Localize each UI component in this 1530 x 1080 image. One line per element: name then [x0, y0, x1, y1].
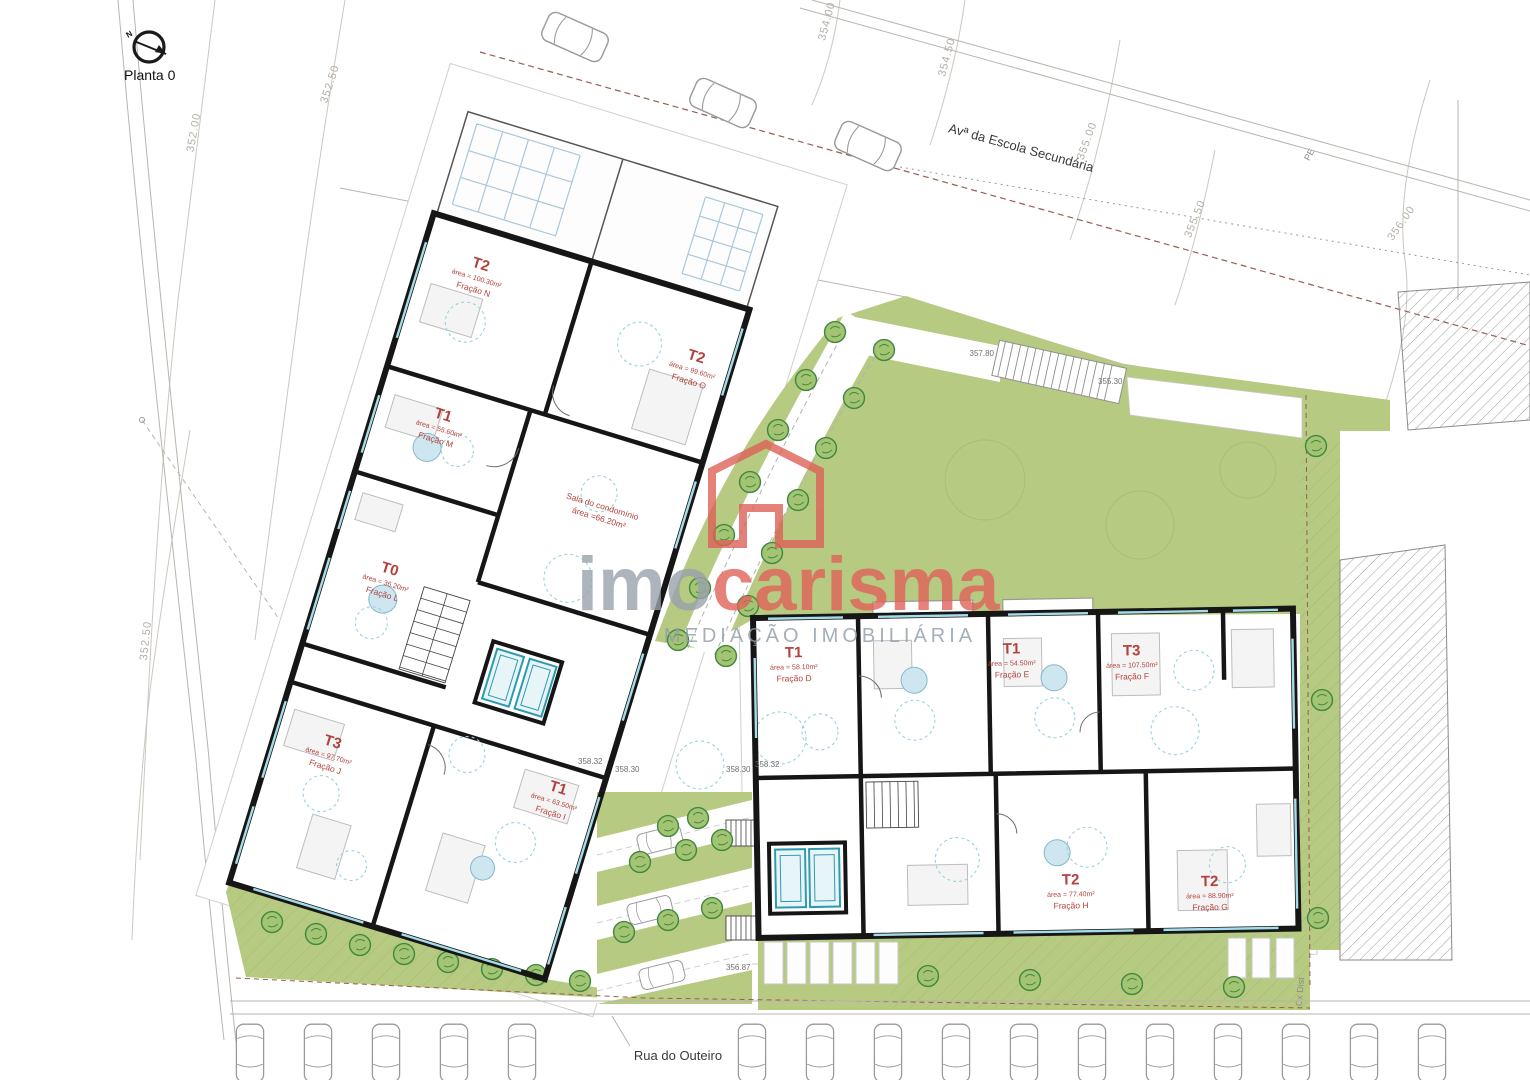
- watermark-tagline: MEDIAÇÃO IMOBILIÁRIA: [664, 623, 976, 647]
- unit-g-fraction: Fração G: [1192, 902, 1228, 913]
- right-building-stairs: [866, 781, 919, 828]
- contour-label-355-50: 355.50: [1182, 198, 1208, 239]
- ramp-stairs-lower: [726, 916, 756, 940]
- contour-label-352-50-b: 352.50: [138, 620, 154, 661]
- hatched-existing-buildings: [1340, 282, 1530, 960]
- street-label-bottom: Rua do Outeiro: [634, 1048, 722, 1063]
- street-label-top: Avª da Escola Secundária: [947, 120, 1096, 175]
- unit-f-type: T3: [1123, 642, 1141, 659]
- level-label-walk-top: 357.80: [970, 349, 995, 358]
- bottom-street: Rua do Outeiro: [230, 1001, 1530, 1080]
- watermark-carisma: carisma: [712, 542, 1000, 627]
- unit-d-area: área = 58.10m²: [770, 664, 818, 672]
- contour-label-352: 352.00: [185, 112, 204, 153]
- contour-label-352-50-a: 352.50: [318, 63, 342, 104]
- unit-h-type: T2: [1062, 871, 1080, 888]
- unit-f-fraction: Fração F: [1115, 671, 1149, 682]
- level-label-4: 358.32: [755, 760, 780, 769]
- watermark-imo: imo: [577, 542, 712, 627]
- contour-label-356: 356.00: [1385, 204, 1418, 243]
- floor-plan-page: 352.00 352.50 352.50 354.00 354.50 355.0…: [0, 0, 1530, 1080]
- parked-cars-bottom: [236, 1024, 1445, 1080]
- unit-d-fraction: Fração D: [776, 673, 811, 684]
- level-label-2: 358.30: [615, 765, 640, 774]
- unit-e-type: T1: [1003, 640, 1021, 657]
- unit-g-area: área = 88.90m²: [1186, 893, 1234, 901]
- level-label-1: 358.32: [578, 757, 603, 766]
- unit-f-area: área = 107.50m²: [1106, 662, 1158, 670]
- level-label-walk-bottom: 355.30: [1098, 377, 1123, 386]
- unit-h-area: área = 77.40m²: [1047, 891, 1095, 899]
- unit-e-area: área = 54.50m²: [988, 660, 1036, 668]
- level-label-3: 358.30: [726, 765, 751, 774]
- level-label-street: 356.87: [726, 963, 751, 972]
- plan-title: Planta 0: [124, 67, 176, 83]
- north-letter: N: [125, 29, 135, 40]
- unit-h-fraction: Fração H: [1053, 900, 1088, 911]
- unit-g-type: T2: [1201, 873, 1219, 890]
- unit-e-fraction: Fração E: [995, 669, 1030, 680]
- site-plan-drawing: 352.00 352.50 352.50 354.00 354.50 355.0…: [0, 0, 1530, 1080]
- title-block: N Planta 0: [124, 29, 176, 83]
